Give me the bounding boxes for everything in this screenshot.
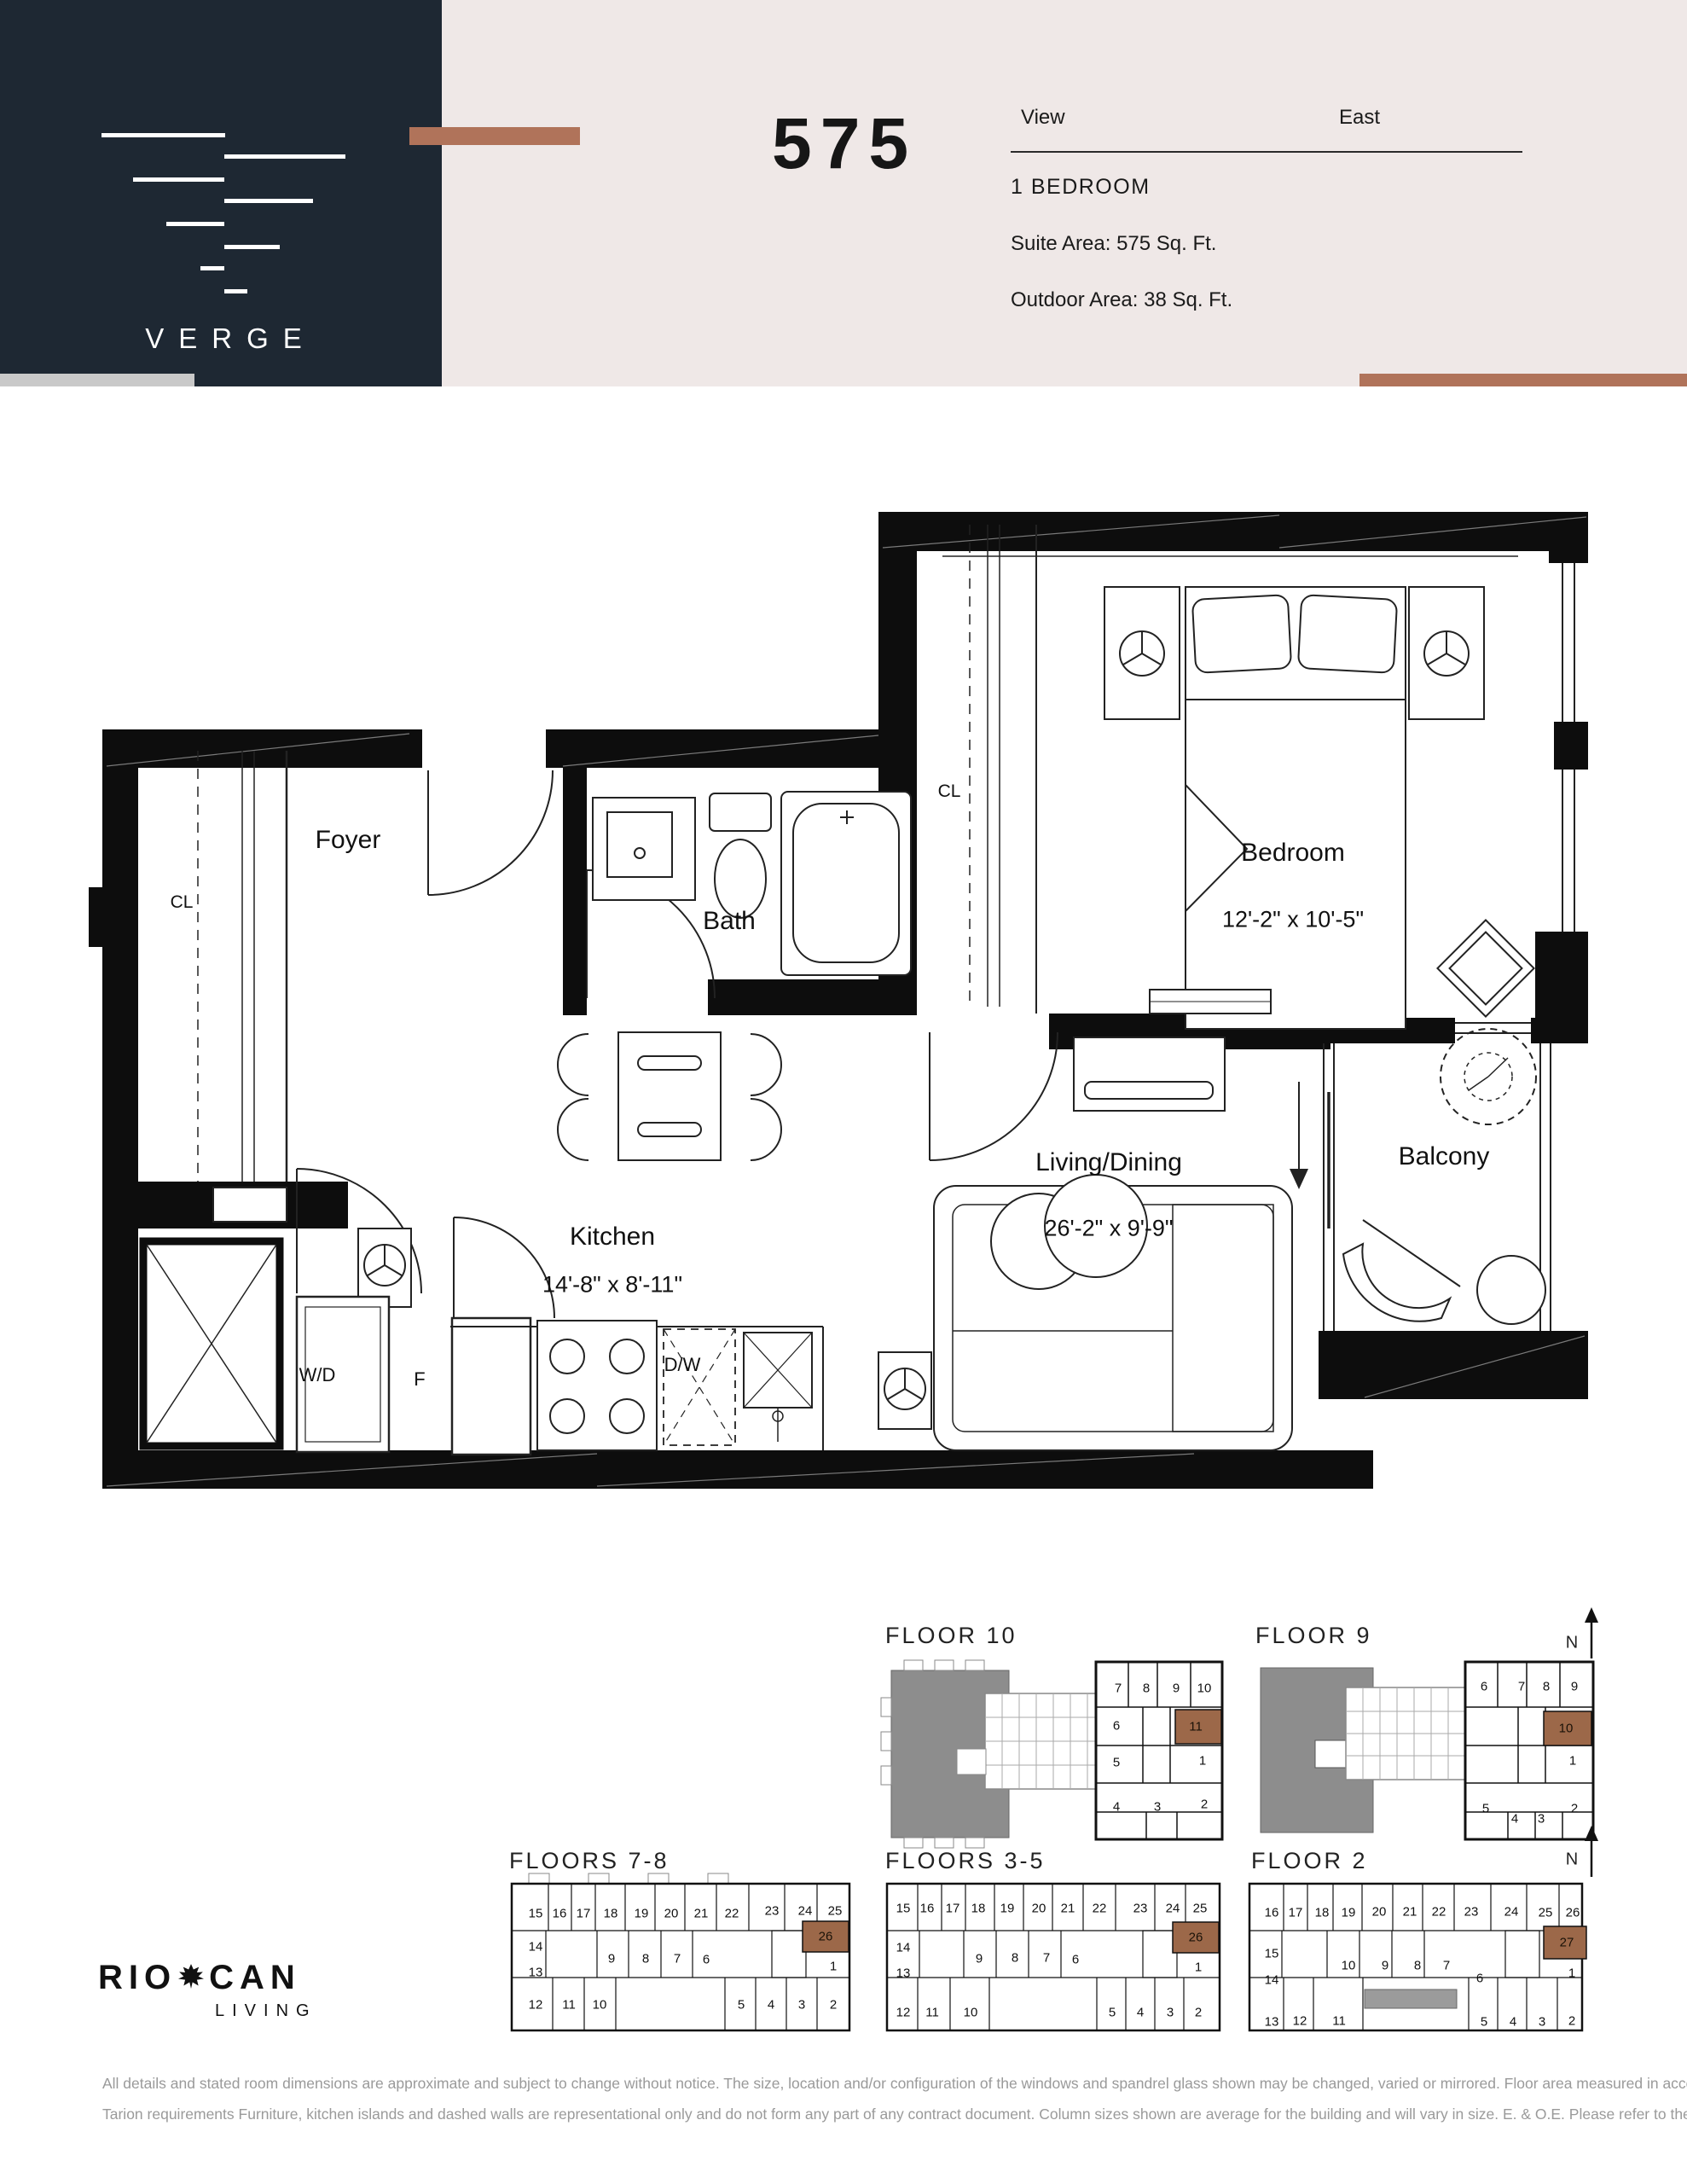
view-underline: [1011, 151, 1522, 153]
dining-set: [558, 1032, 781, 1160]
living-furniture: [878, 1037, 1292, 1450]
accent-bar-top: [409, 127, 580, 145]
brand-wordmark: VERGE: [94, 322, 353, 355]
keyplan-floors-3-5: [887, 1884, 1220, 2030]
suite-number: 575: [772, 102, 917, 185]
suite-type: 1 BEDROOM: [1011, 175, 1151, 200]
balcony-arrow: [1290, 1082, 1308, 1189]
riocan-logo-living: LIVING: [215, 2001, 317, 2021]
kitchen-run: [143, 1228, 823, 1455]
view-value: East: [1339, 106, 1380, 130]
keyplan-floor-2: [1249, 1884, 1586, 2030]
disclaimer-line-1: All details and stated room dimensions a…: [102, 2075, 1586, 2093]
balcony-items: [1343, 1029, 1545, 1324]
riocan-logo-can: CAN: [209, 1959, 301, 1997]
keyplan-floors-7-8: [512, 1873, 849, 2030]
north-arrow-top: [1585, 1607, 1598, 1658]
view-label: View: [1021, 106, 1065, 130]
keyplan-floor-9: [1261, 1662, 1593, 1839]
brand-logo-stripes: [101, 133, 345, 293]
riocan-logo: RIO CAN: [98, 1959, 301, 1997]
accent-bar-bottom: [1359, 374, 1687, 386]
accent-bar-gray: [0, 374, 194, 386]
disclaimer-line-2: Tarion requirements Furniture, kitchen i…: [102, 2106, 1586, 2123]
keyplan-floor-10: [881, 1660, 1222, 1848]
suite-area: Suite Area: 575 Sq. Ft.: [1011, 232, 1216, 256]
outdoor-area: Outdoor Area: 38 Sq. Ft.: [1011, 288, 1232, 312]
maple-leaf-icon: [178, 1963, 204, 1989]
riocan-logo-rio: RIO: [98, 1959, 177, 1997]
bedroom-furniture: [1104, 587, 1534, 1029]
bath-fixtures: [593, 792, 911, 975]
